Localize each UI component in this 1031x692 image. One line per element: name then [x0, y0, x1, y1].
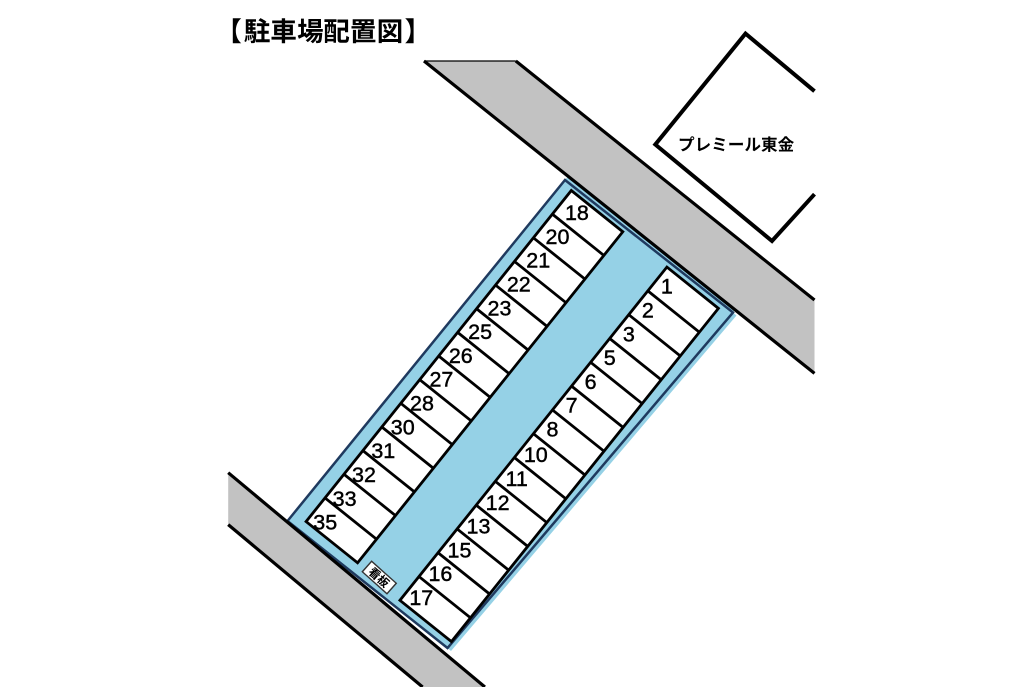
svg-text:21: 21	[526, 249, 550, 273]
svg-text:5: 5	[604, 346, 616, 370]
svg-text:1: 1	[661, 275, 673, 299]
svg-text:17: 17	[409, 586, 433, 610]
svg-text:3: 3	[623, 322, 635, 346]
svg-text:8: 8	[547, 418, 559, 442]
svg-text:30: 30	[391, 415, 415, 439]
svg-text:25: 25	[468, 320, 492, 344]
svg-text:31: 31	[371, 439, 395, 463]
svg-text:23: 23	[488, 296, 512, 320]
svg-text:2: 2	[642, 299, 654, 323]
svg-text:6: 6	[585, 370, 597, 394]
svg-text:16: 16	[428, 562, 452, 586]
svg-text:15: 15	[448, 538, 472, 562]
svg-text:7: 7	[566, 394, 578, 418]
svg-text:27: 27	[429, 368, 453, 392]
svg-text:33: 33	[333, 487, 357, 511]
svg-text:32: 32	[352, 463, 376, 487]
svg-text:11: 11	[506, 467, 528, 491]
svg-text:26: 26	[449, 344, 473, 368]
svg-text:18: 18	[565, 201, 589, 225]
svg-text:35: 35	[313, 511, 337, 535]
svg-text:22: 22	[507, 273, 531, 297]
svg-text:28: 28	[410, 392, 434, 416]
svg-text:13: 13	[467, 515, 491, 539]
svg-text:20: 20	[546, 225, 570, 249]
svg-text:10: 10	[524, 443, 548, 467]
svg-text:12: 12	[486, 491, 510, 515]
